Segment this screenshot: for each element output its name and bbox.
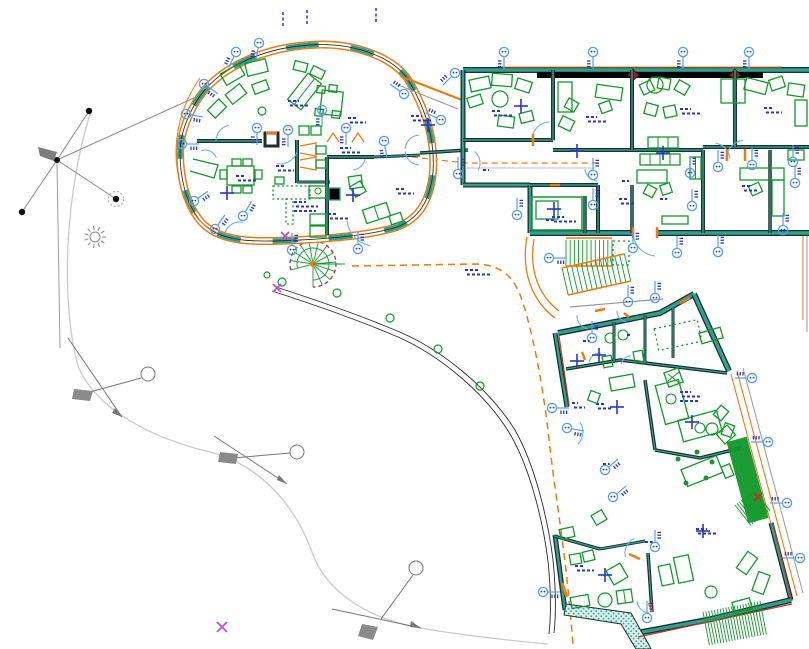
layer-south-wing <box>554 294 803 649</box>
layer-north-wing <box>463 67 809 256</box>
layer-west-house <box>176 45 468 246</box>
layer-site <box>19 97 556 644</box>
cad-floor-plan-viewport <box>0 0 809 649</box>
layer-annotations <box>177 8 804 632</box>
floor-plan-drawing <box>0 0 809 649</box>
